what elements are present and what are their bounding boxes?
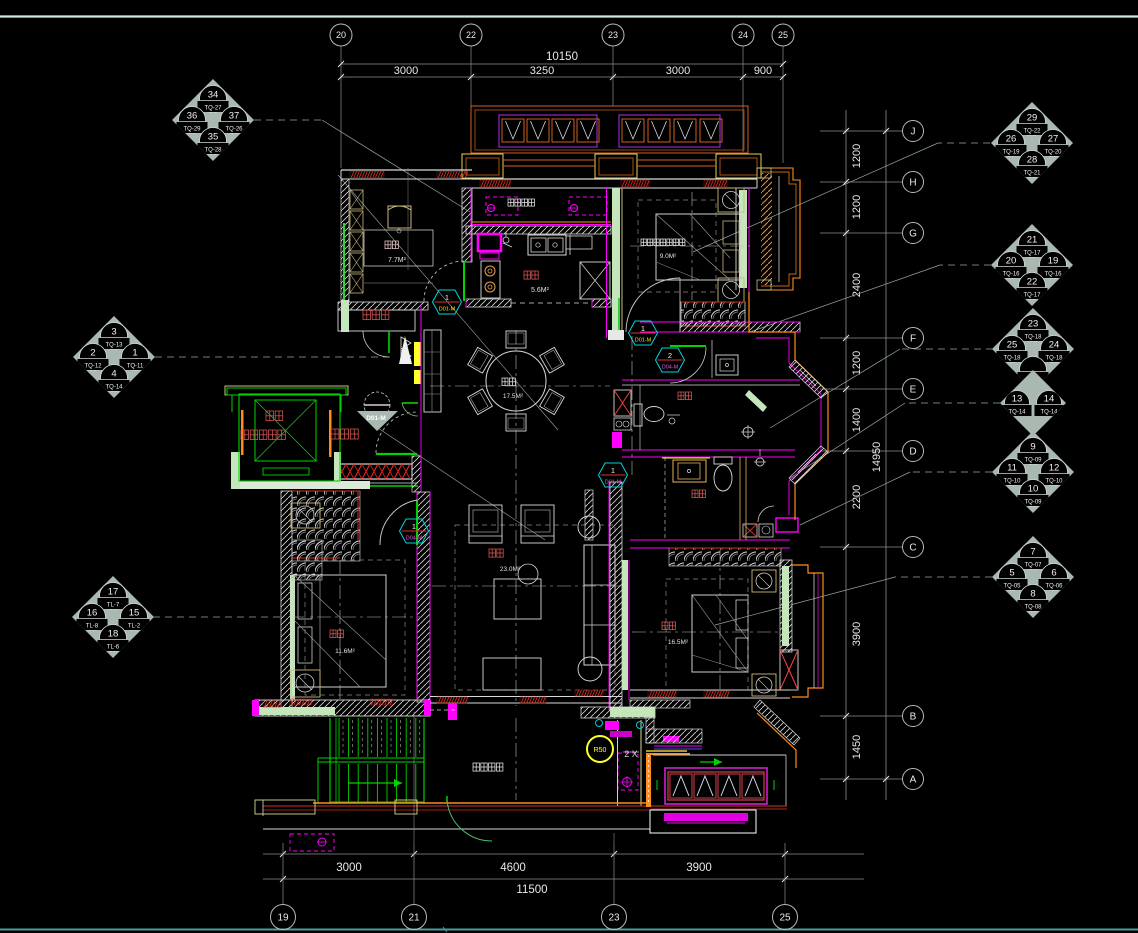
svg-text:22: 22 bbox=[1027, 277, 1038, 288]
svg-text:2400: 2400 bbox=[851, 273, 863, 297]
svg-text:3000: 3000 bbox=[394, 65, 418, 77]
svg-text:TQ-11: TQ-11 bbox=[127, 364, 144, 370]
svg-text:34: 34 bbox=[208, 90, 219, 101]
svg-text:D04-M: D04-M bbox=[662, 365, 679, 371]
svg-text:1: 1 bbox=[132, 348, 137, 359]
svg-text:24: 24 bbox=[1049, 340, 1060, 351]
svg-text:D01-M: D01-M bbox=[439, 307, 456, 313]
svg-text:22: 22 bbox=[466, 30, 476, 40]
svg-text:TQ-18: TQ-18 bbox=[1045, 356, 1063, 362]
svg-text:TL-2: TL-2 bbox=[128, 624, 141, 630]
svg-text:3900: 3900 bbox=[686, 862, 712, 874]
svg-text:2: 2 bbox=[668, 351, 672, 360]
svg-text:20: 20 bbox=[336, 30, 346, 40]
svg-text:TQ-07: TQ-07 bbox=[1024, 563, 1042, 569]
svg-text:TQ-16: TQ-16 bbox=[1002, 272, 1020, 278]
svg-text:15: 15 bbox=[129, 608, 140, 619]
svg-text:23.0M²: 23.0M² bbox=[500, 566, 521, 573]
svg-text:D: D bbox=[909, 447, 916, 458]
svg-text:3250: 3250 bbox=[530, 65, 554, 77]
svg-text:11500: 11500 bbox=[516, 884, 547, 896]
svg-text:1: 1 bbox=[412, 522, 416, 531]
svg-text:2: 2 bbox=[90, 348, 95, 359]
svg-text:36: 36 bbox=[187, 111, 198, 122]
svg-text:1200: 1200 bbox=[851, 144, 863, 168]
svg-text:J: J bbox=[911, 127, 916, 138]
svg-text:TQ-05: TQ-05 bbox=[1003, 584, 1021, 590]
svg-text:G: G bbox=[909, 229, 917, 240]
svg-text:TQ-14: TQ-14 bbox=[105, 385, 123, 391]
svg-text:16.5M²: 16.5M² bbox=[668, 639, 689, 646]
svg-text:6: 6 bbox=[1051, 568, 1056, 579]
svg-text:D01-M: D01-M bbox=[605, 480, 622, 486]
svg-text:TQ-12: TQ-12 bbox=[84, 364, 102, 370]
svg-text:F: F bbox=[910, 334, 916, 345]
svg-text:1: 1 bbox=[445, 293, 449, 302]
svg-text:TL-6: TL-6 bbox=[107, 645, 120, 651]
svg-text:25: 25 bbox=[778, 30, 788, 40]
svg-text:11.6M²: 11.6M² bbox=[335, 648, 356, 655]
svg-text:16: 16 bbox=[87, 608, 98, 619]
svg-text:TQ-17: TQ-17 bbox=[1023, 251, 1041, 257]
svg-text:2 X: 2 X bbox=[624, 749, 638, 759]
svg-text:25: 25 bbox=[779, 913, 791, 924]
svg-text:TQ-29: TQ-29 bbox=[183, 127, 201, 133]
svg-text:TQ-06: TQ-06 bbox=[1045, 584, 1063, 590]
svg-text:H: H bbox=[909, 178, 916, 189]
svg-text:TQ-19: TQ-19 bbox=[1002, 150, 1020, 156]
svg-text:TQ-09: TQ-09 bbox=[1024, 458, 1042, 464]
svg-text:TQ-18: TQ-18 bbox=[1003, 356, 1021, 362]
svg-text:D01-M: D01-M bbox=[635, 338, 652, 344]
svg-text:3900: 3900 bbox=[851, 622, 863, 646]
svg-text:B: B bbox=[910, 712, 917, 723]
svg-text:23: 23 bbox=[608, 30, 618, 40]
svg-text:TQ-08: TQ-08 bbox=[1024, 605, 1042, 611]
svg-text:13: 13 bbox=[1012, 394, 1023, 405]
svg-text:12: 12 bbox=[1049, 463, 1060, 474]
svg-text:TQ-10: TQ-10 bbox=[1003, 479, 1021, 485]
svg-text:28: 28 bbox=[1027, 155, 1038, 166]
svg-text:7.7M²: 7.7M² bbox=[388, 257, 407, 264]
svg-text:35: 35 bbox=[208, 132, 219, 143]
svg-text:TQ-17: TQ-17 bbox=[1023, 293, 1041, 299]
svg-text:2200: 2200 bbox=[851, 485, 863, 509]
svg-text:5: 5 bbox=[1009, 568, 1014, 579]
svg-text:14950: 14950 bbox=[871, 442, 883, 473]
svg-text:TL-8: TL-8 bbox=[86, 624, 99, 630]
svg-text:10150: 10150 bbox=[546, 51, 578, 63]
svg-text:26: 26 bbox=[1006, 134, 1017, 145]
svg-text:1200: 1200 bbox=[851, 351, 863, 375]
svg-text:5.6M²: 5.6M² bbox=[531, 287, 550, 294]
svg-text:TQ-20: TQ-20 bbox=[1044, 150, 1062, 156]
svg-text:25: 25 bbox=[1007, 340, 1018, 351]
svg-text:24: 24 bbox=[738, 30, 748, 40]
svg-text:23: 23 bbox=[608, 913, 620, 924]
svg-text:3: 3 bbox=[111, 327, 116, 338]
svg-text:1: 1 bbox=[641, 324, 645, 333]
svg-text:3000: 3000 bbox=[336, 862, 362, 874]
svg-text:10: 10 bbox=[1028, 484, 1039, 495]
svg-text:1450: 1450 bbox=[851, 735, 863, 759]
svg-text:TL-7: TL-7 bbox=[107, 603, 120, 609]
svg-text:TQ-27: TQ-27 bbox=[204, 106, 222, 112]
svg-text:17: 17 bbox=[108, 587, 119, 598]
svg-text:37: 37 bbox=[229, 111, 240, 122]
svg-text:1400: 1400 bbox=[851, 408, 863, 432]
svg-text:TQ-22: TQ-22 bbox=[1023, 129, 1041, 135]
svg-text:TQ-10: TQ-10 bbox=[1045, 479, 1063, 485]
svg-text:C: C bbox=[909, 543, 916, 554]
svg-text:9: 9 bbox=[1030, 442, 1035, 453]
svg-text:21: 21 bbox=[408, 913, 420, 924]
svg-text:27: 27 bbox=[1048, 134, 1059, 145]
svg-text:7: 7 bbox=[1030, 547, 1035, 558]
svg-text:19: 19 bbox=[277, 913, 289, 924]
svg-text:23: 23 bbox=[1028, 319, 1039, 330]
svg-text:TQ-16: TQ-16 bbox=[1044, 272, 1062, 278]
svg-text:29: 29 bbox=[1027, 113, 1038, 124]
svg-text:14: 14 bbox=[1044, 394, 1055, 405]
svg-text:TQ-18: TQ-18 bbox=[1024, 335, 1042, 341]
svg-text:17.5M²: 17.5M² bbox=[503, 393, 524, 400]
svg-text:E: E bbox=[910, 385, 917, 396]
svg-text:TQ-09: TQ-09 bbox=[1024, 500, 1042, 506]
svg-text:TQ-26: TQ-26 bbox=[225, 127, 243, 133]
svg-text:1: 1 bbox=[611, 466, 615, 475]
svg-text:R50: R50 bbox=[594, 747, 607, 754]
svg-text:4600: 4600 bbox=[500, 862, 526, 874]
svg-text:4: 4 bbox=[111, 369, 116, 380]
svg-text:D01-M: D01-M bbox=[366, 415, 386, 422]
svg-text:TQ-21: TQ-21 bbox=[1023, 171, 1041, 177]
svg-text:TQ-28: TQ-28 bbox=[204, 148, 222, 154]
svg-text:18: 18 bbox=[108, 629, 119, 640]
svg-text:21: 21 bbox=[1027, 235, 1038, 246]
svg-text:8: 8 bbox=[1030, 589, 1035, 600]
svg-text:9.0M²: 9.0M² bbox=[660, 253, 677, 260]
svg-text:900: 900 bbox=[754, 65, 772, 77]
svg-text:1200: 1200 bbox=[851, 195, 863, 219]
svg-text:19: 19 bbox=[1048, 256, 1059, 267]
svg-text:3000: 3000 bbox=[666, 65, 690, 77]
svg-text:D04-M: D04-M bbox=[406, 536, 423, 542]
svg-text:20: 20 bbox=[1006, 256, 1017, 267]
svg-text:A: A bbox=[910, 775, 917, 786]
svg-text:11: 11 bbox=[1007, 463, 1017, 474]
svg-text:TQ-13: TQ-13 bbox=[105, 343, 123, 349]
